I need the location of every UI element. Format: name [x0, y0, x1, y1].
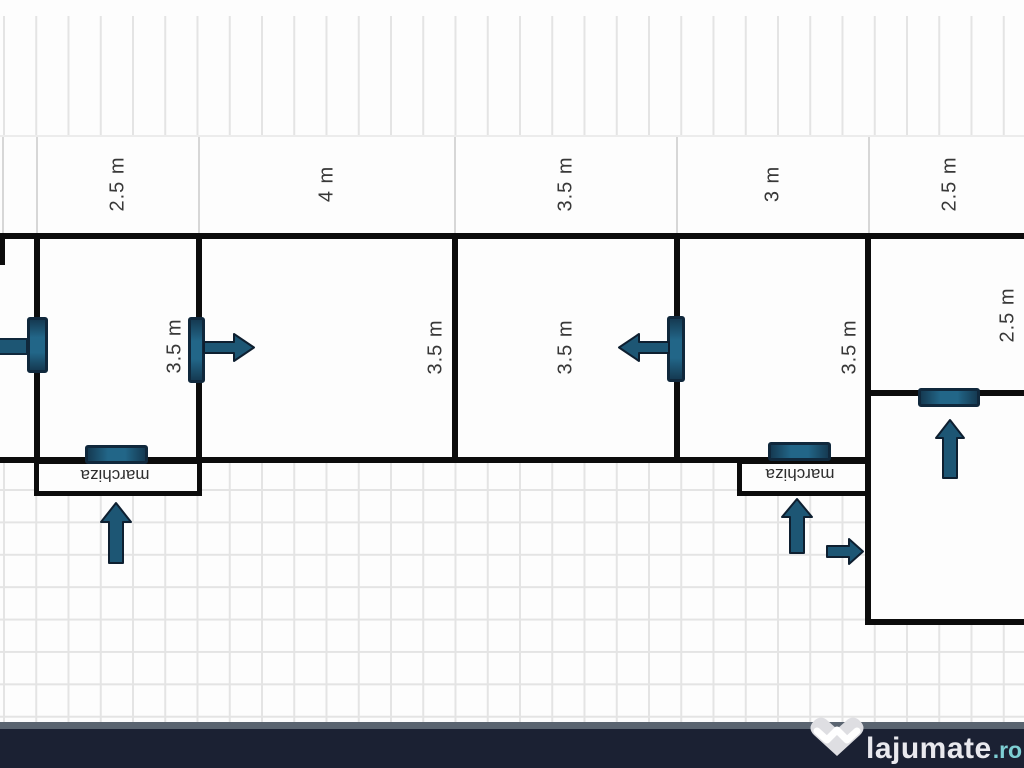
grid-top-band — [0, 16, 1024, 137]
door-marker-room1-room2 — [188, 317, 205, 383]
door-arrow-right-icon — [204, 332, 256, 363]
watermark-tld-text: .ro — [993, 737, 1022, 764]
room5-arrow-up-icon — [935, 419, 965, 479]
right-room-extension — [871, 457, 1024, 619]
watermark: lajumate .ro — [866, 729, 1022, 768]
wall-room4-room5 — [865, 233, 871, 625]
door-marker-annex-right — [768, 442, 831, 461]
floor-plan-image: 2.5 m 4 m 3.5 m 3 m 2.5 m 3.5 m 3.5 — [0, 0, 1024, 768]
wall-room2-room3 — [452, 233, 458, 463]
wall-left-stub — [0, 233, 5, 265]
wall-room5-bottom — [865, 619, 1024, 625]
bottom-bar-top-line — [0, 722, 1024, 729]
door-arrow-left-icon — [615, 332, 669, 363]
door-marker-room5-inner — [918, 388, 980, 407]
watermark-brand-text: lajumate — [866, 729, 992, 768]
heart-icon — [806, 714, 868, 758]
door-marker-annex-left — [85, 445, 148, 464]
band-separator — [676, 137, 678, 233]
band-separator — [36, 137, 38, 233]
band-separator — [2, 137, 4, 233]
door-arrow-bar-left-edge — [0, 338, 28, 355]
entrance-arrow-up-right-icon — [781, 498, 813, 554]
label-band-top-line — [0, 135, 1024, 137]
band-separator — [198, 137, 200, 233]
door-marker-room1-left — [27, 317, 48, 373]
band-separator — [868, 137, 870, 233]
band-separator — [454, 137, 456, 233]
entrance-arrow-up-left-icon — [100, 502, 132, 564]
small-arrow-right-icon — [827, 537, 865, 566]
